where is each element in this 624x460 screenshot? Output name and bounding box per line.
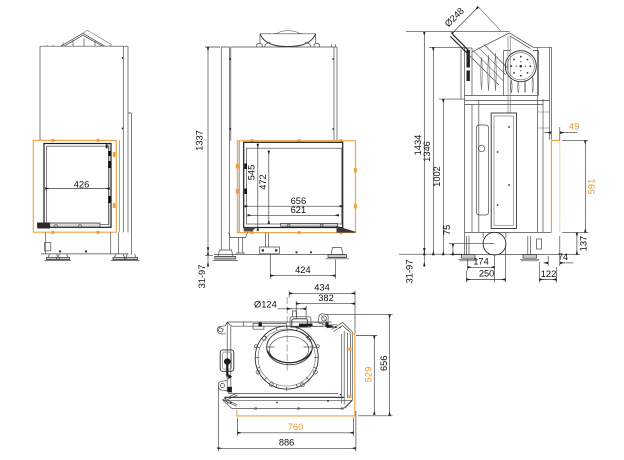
svg-text:1346: 1346 [422,141,432,162]
svg-text:656: 656 [379,356,389,372]
svg-text:529: 529 [364,367,374,383]
svg-text:1337: 1337 [195,130,205,151]
svg-text:122: 122 [541,269,557,279]
svg-text:74: 74 [558,252,568,262]
svg-text:31-97: 31-97 [405,260,415,284]
svg-text:424: 424 [295,265,311,275]
svg-text:250: 250 [479,269,495,279]
svg-text:137: 137 [578,236,588,252]
svg-text:174: 174 [473,256,489,266]
svg-text:434: 434 [314,283,330,293]
svg-text:49: 49 [569,122,579,132]
svg-text:426: 426 [74,179,90,189]
svg-text:75: 75 [442,225,452,235]
svg-text:382: 382 [318,293,334,303]
svg-text:1002: 1002 [432,166,442,187]
svg-text:591: 591 [587,179,597,195]
svg-text:886: 886 [279,437,295,447]
svg-text:545: 545 [247,165,257,181]
svg-text:Ø124: Ø124 [254,300,277,310]
svg-text:760: 760 [288,422,304,432]
svg-text:621: 621 [291,205,307,215]
svg-text:472: 472 [258,174,268,190]
svg-text:31-97: 31-97 [197,265,207,289]
